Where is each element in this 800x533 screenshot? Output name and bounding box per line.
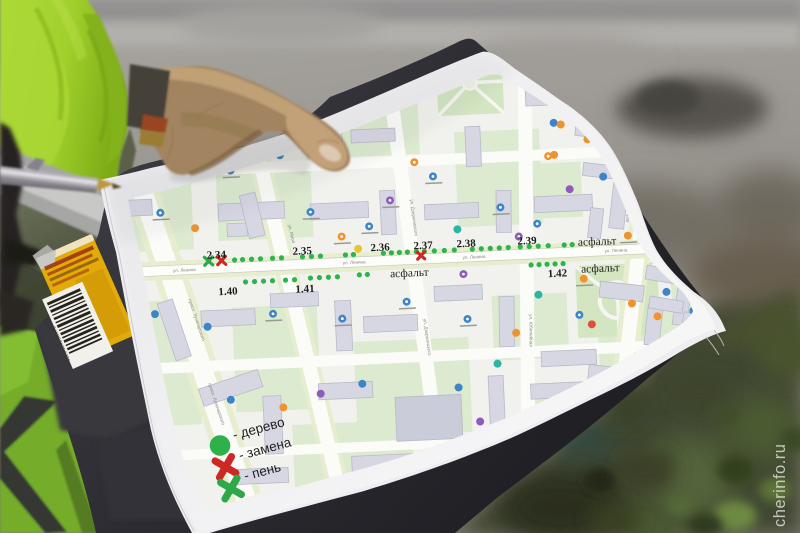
- svg-text:асфальт: асфальт: [578, 235, 617, 249]
- svg-text:2.38: 2.38: [456, 237, 476, 250]
- svg-text:ул. Ленина: ул. Ленина: [343, 259, 366, 265]
- svg-text:2.35: 2.35: [292, 245, 312, 258]
- svg-text:2.36: 2.36: [370, 241, 390, 254]
- svg-text:cherinfo.ru: cherinfo.ru: [771, 444, 789, 527]
- svg-text:2.37: 2.37: [413, 239, 433, 252]
- svg-text:2.34: 2.34: [206, 249, 226, 262]
- svg-text:1.41: 1.41: [295, 283, 315, 296]
- svg-text:ул. Юбилейная: ул. Юбилейная: [528, 314, 534, 347]
- svg-text:ул. Ленина: ул. Ленина: [604, 247, 627, 253]
- svg-text:1.42: 1.42: [548, 267, 568, 280]
- svg-text:2.39: 2.39: [517, 235, 537, 248]
- svg-text:асфальт: асфальт: [390, 267, 429, 281]
- svg-text:асфальт: асфальт: [581, 262, 620, 276]
- svg-text:ул. Ленина: ул. Ленина: [173, 267, 196, 273]
- svg-text:ул. Ленина: ул. Ленина: [463, 254, 486, 260]
- svg-text:1.40: 1.40: [218, 285, 238, 298]
